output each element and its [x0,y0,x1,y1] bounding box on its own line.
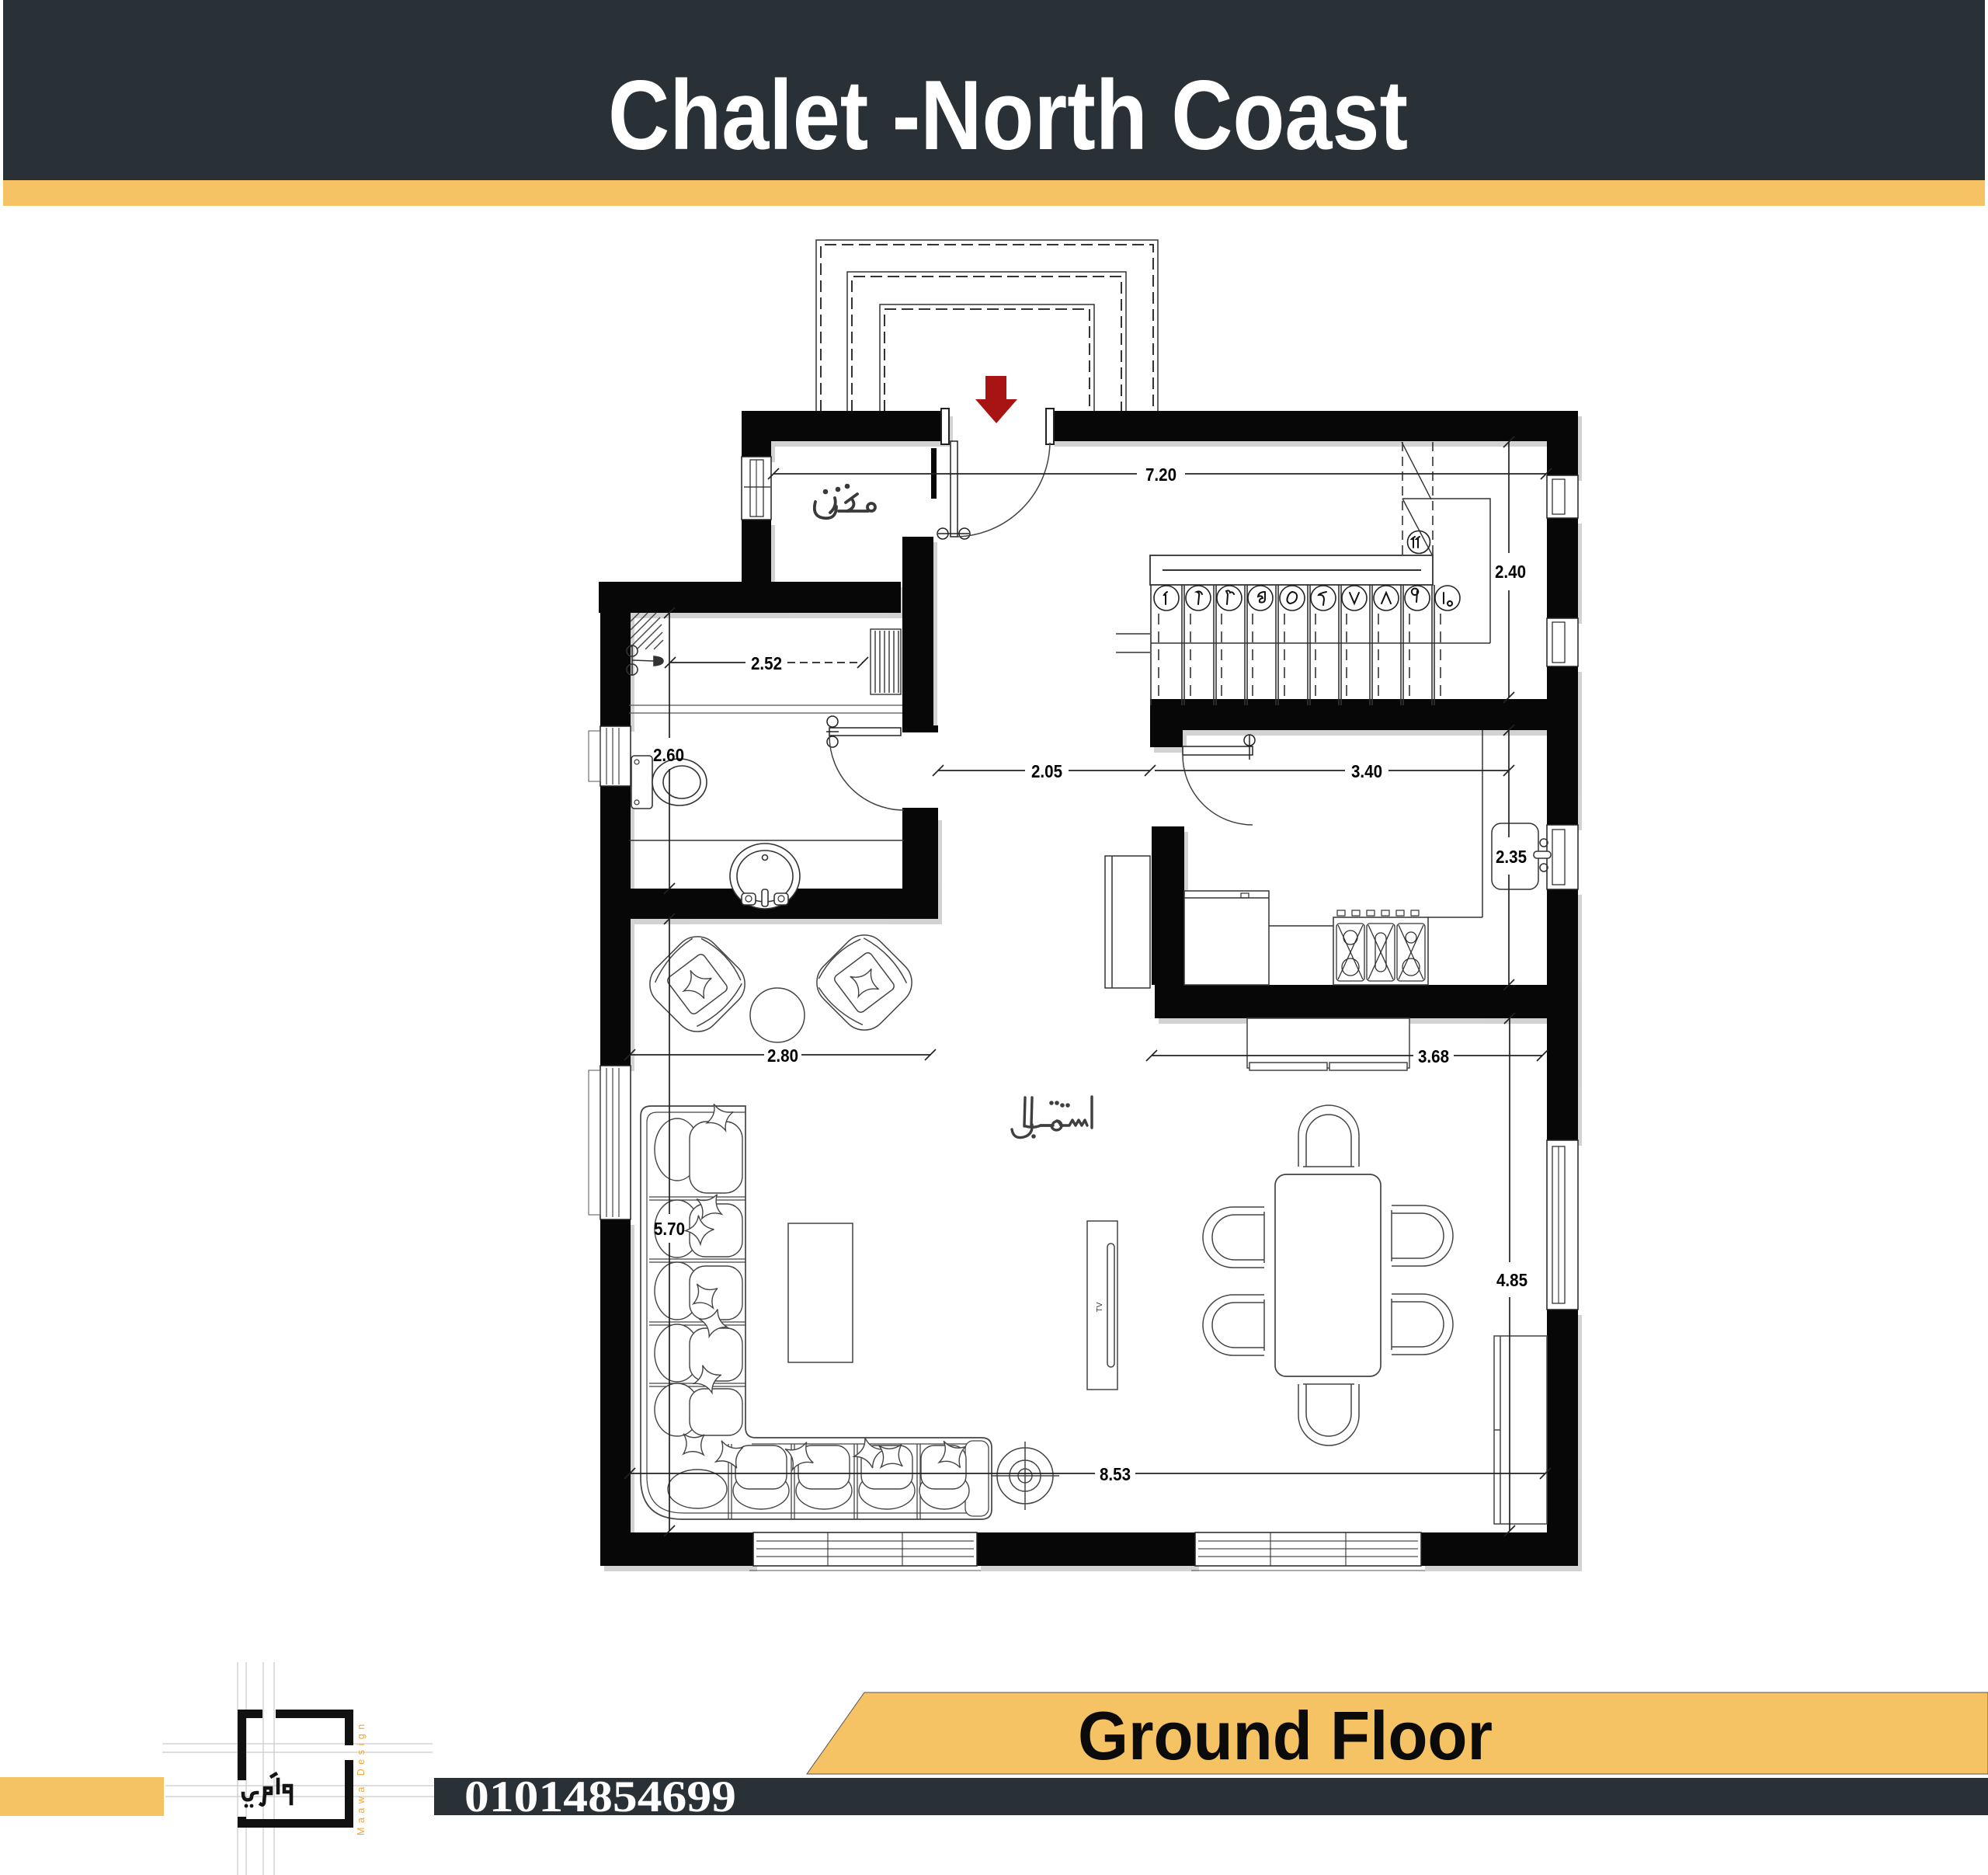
svg-text:01014854699: 01014854699 [464,1772,736,1821]
svg-text:Chalet -North Coast: Chalet -North Coast [608,60,1408,170]
svg-text:5.70: 5.70 [654,1219,685,1239]
svg-text:Maawa Design: Maawa Design [356,1720,367,1835]
svg-text:2.80: 2.80 [767,1045,798,1066]
svg-text:3.68: 3.68 [1418,1046,1449,1066]
svg-text:2.60: 2.60 [653,745,684,765]
svg-text:2.05: 2.05 [1031,761,1062,781]
svg-text:2.35: 2.35 [1496,847,1527,867]
svg-text:2.52: 2.52 [751,653,782,673]
svg-text:Ground Floor: Ground Floor [1078,1697,1493,1774]
svg-text:3.40: 3.40 [1351,761,1382,781]
svg-text:7.20: 7.20 [1145,464,1176,485]
svg-text:4.85: 4.85 [1496,1270,1527,1290]
svg-text:2.40: 2.40 [1495,562,1526,582]
svg-text:TV: TV [1096,1302,1104,1312]
svg-text:8.53: 8.53 [1100,1464,1131,1484]
